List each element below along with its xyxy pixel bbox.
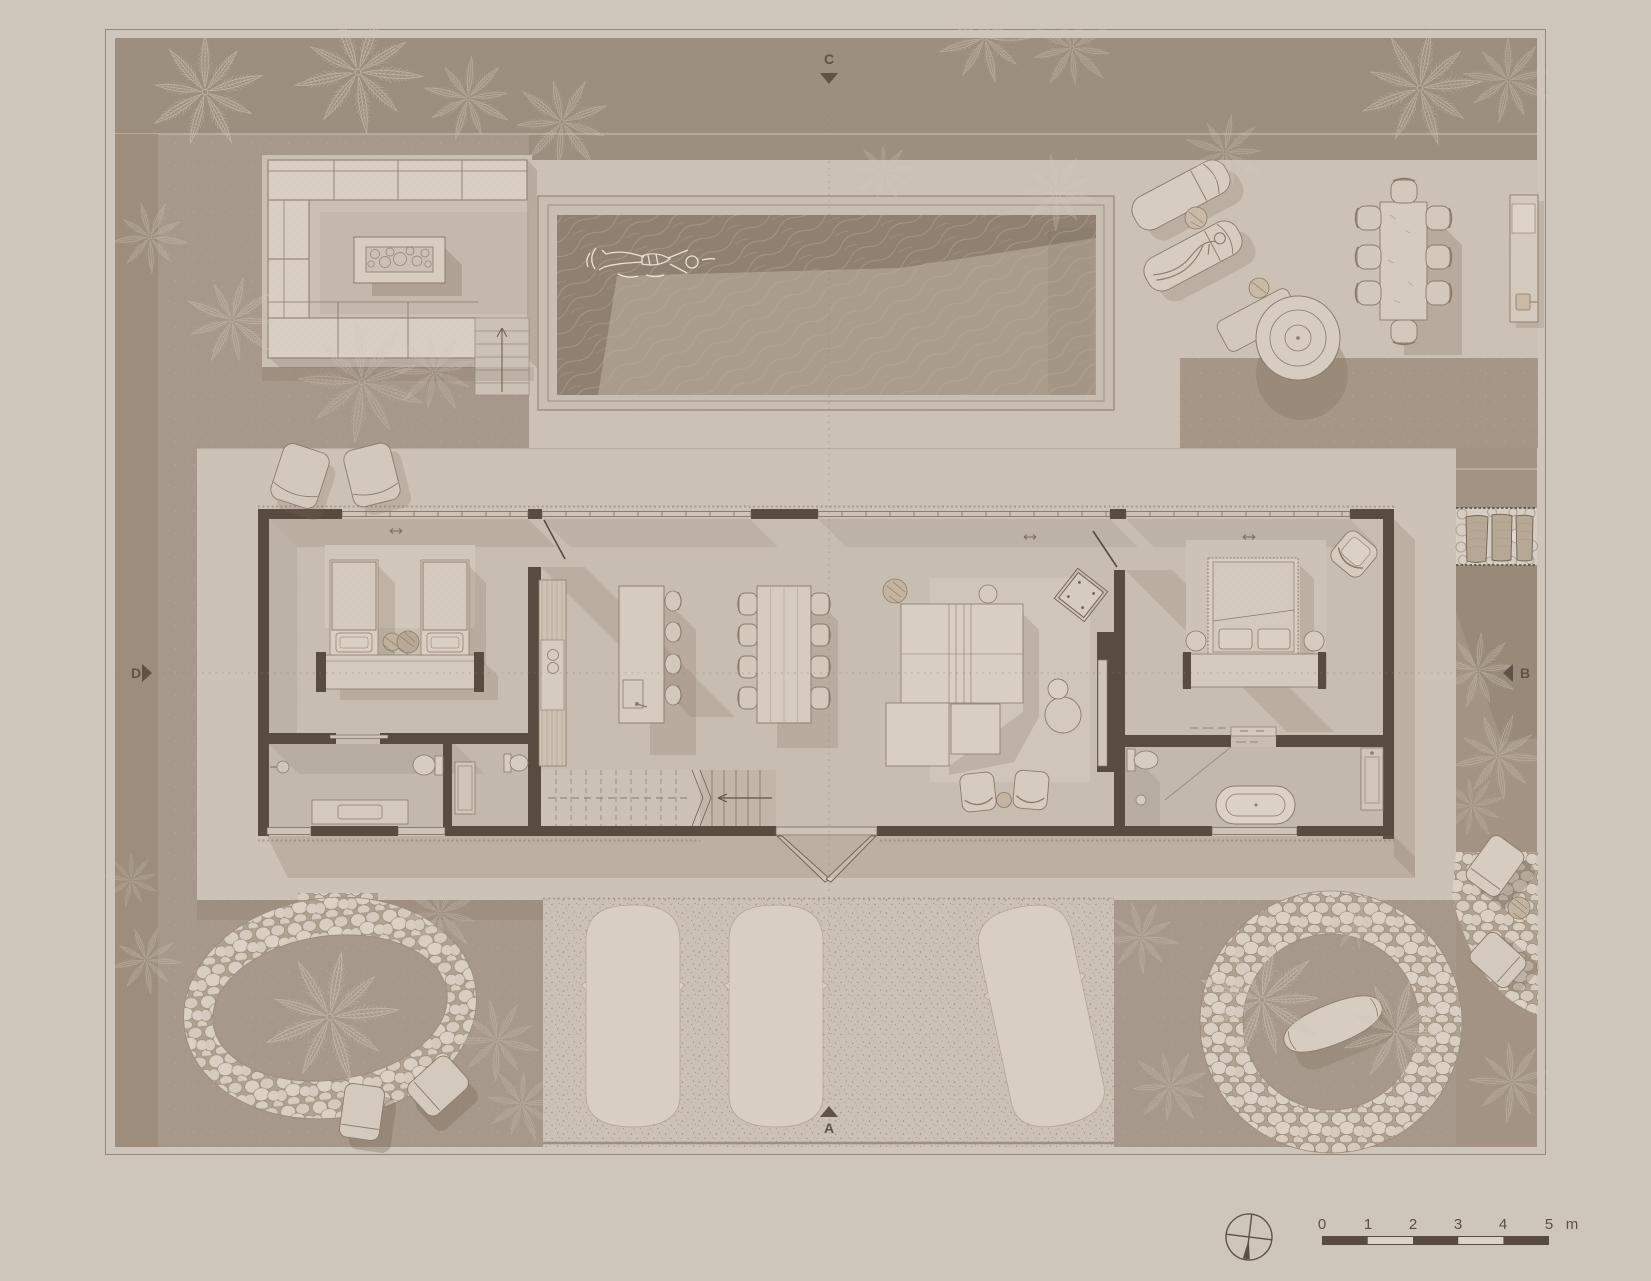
svg-text:3: 3 [1454, 1216, 1462, 1233]
svg-text:m: m [1566, 1216, 1579, 1233]
svg-text:2: 2 [1409, 1216, 1417, 1233]
svg-text:A: A [824, 1120, 834, 1136]
svg-text:5: 5 [1545, 1216, 1553, 1233]
svg-text:4: 4 [1499, 1216, 1507, 1233]
svg-text:D: D [131, 665, 141, 681]
svg-text:B: B [1520, 665, 1530, 681]
svg-text:C: C [824, 51, 834, 67]
svg-text:0: 0 [1318, 1216, 1326, 1233]
svg-text:1: 1 [1364, 1216, 1372, 1233]
